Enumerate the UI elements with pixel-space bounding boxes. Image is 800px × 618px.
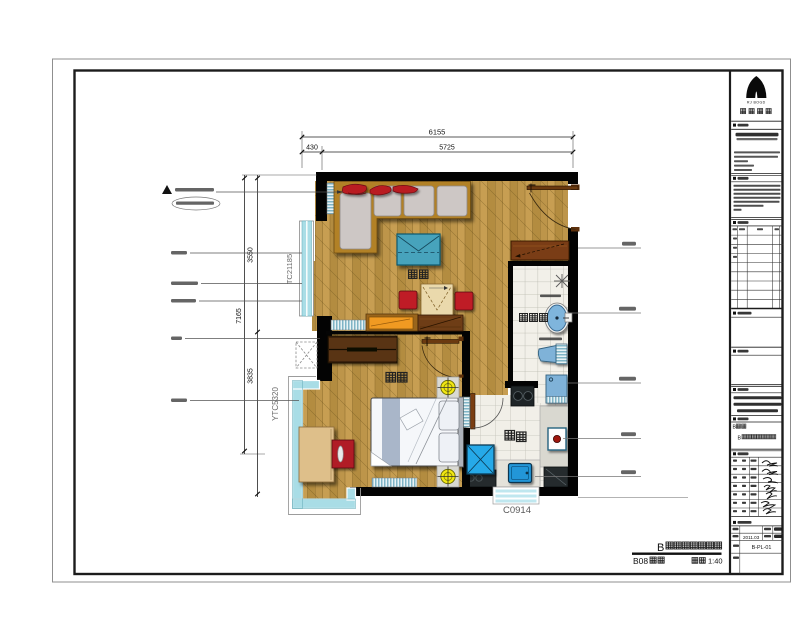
svg-text:1:40: 1:40 — [708, 557, 723, 566]
svg-text:B: B — [657, 542, 664, 554]
svg-text:3835: 3835 — [248, 368, 255, 384]
svg-text:B-PL-01: B-PL-01 — [752, 545, 772, 551]
svg-text:3550: 3550 — [248, 247, 255, 263]
svg-text:RJ BOGD: RJ BOGD — [747, 101, 766, 105]
svg-text:TC21185: TC21185 — [285, 254, 294, 284]
svg-text:2011.03: 2011.03 — [743, 535, 760, 540]
svg-text:7165: 7165 — [236, 308, 243, 324]
svg-text:YTC5320: YTC5320 — [271, 387, 280, 421]
svg-text:B08: B08 — [633, 556, 648, 566]
svg-text:6155: 6155 — [429, 128, 446, 137]
svg-text:C0914: C0914 — [503, 505, 531, 516]
svg-text:430: 430 — [306, 145, 318, 152]
svg-text:B: B — [738, 435, 742, 441]
svg-text:5725: 5725 — [439, 145, 455, 152]
